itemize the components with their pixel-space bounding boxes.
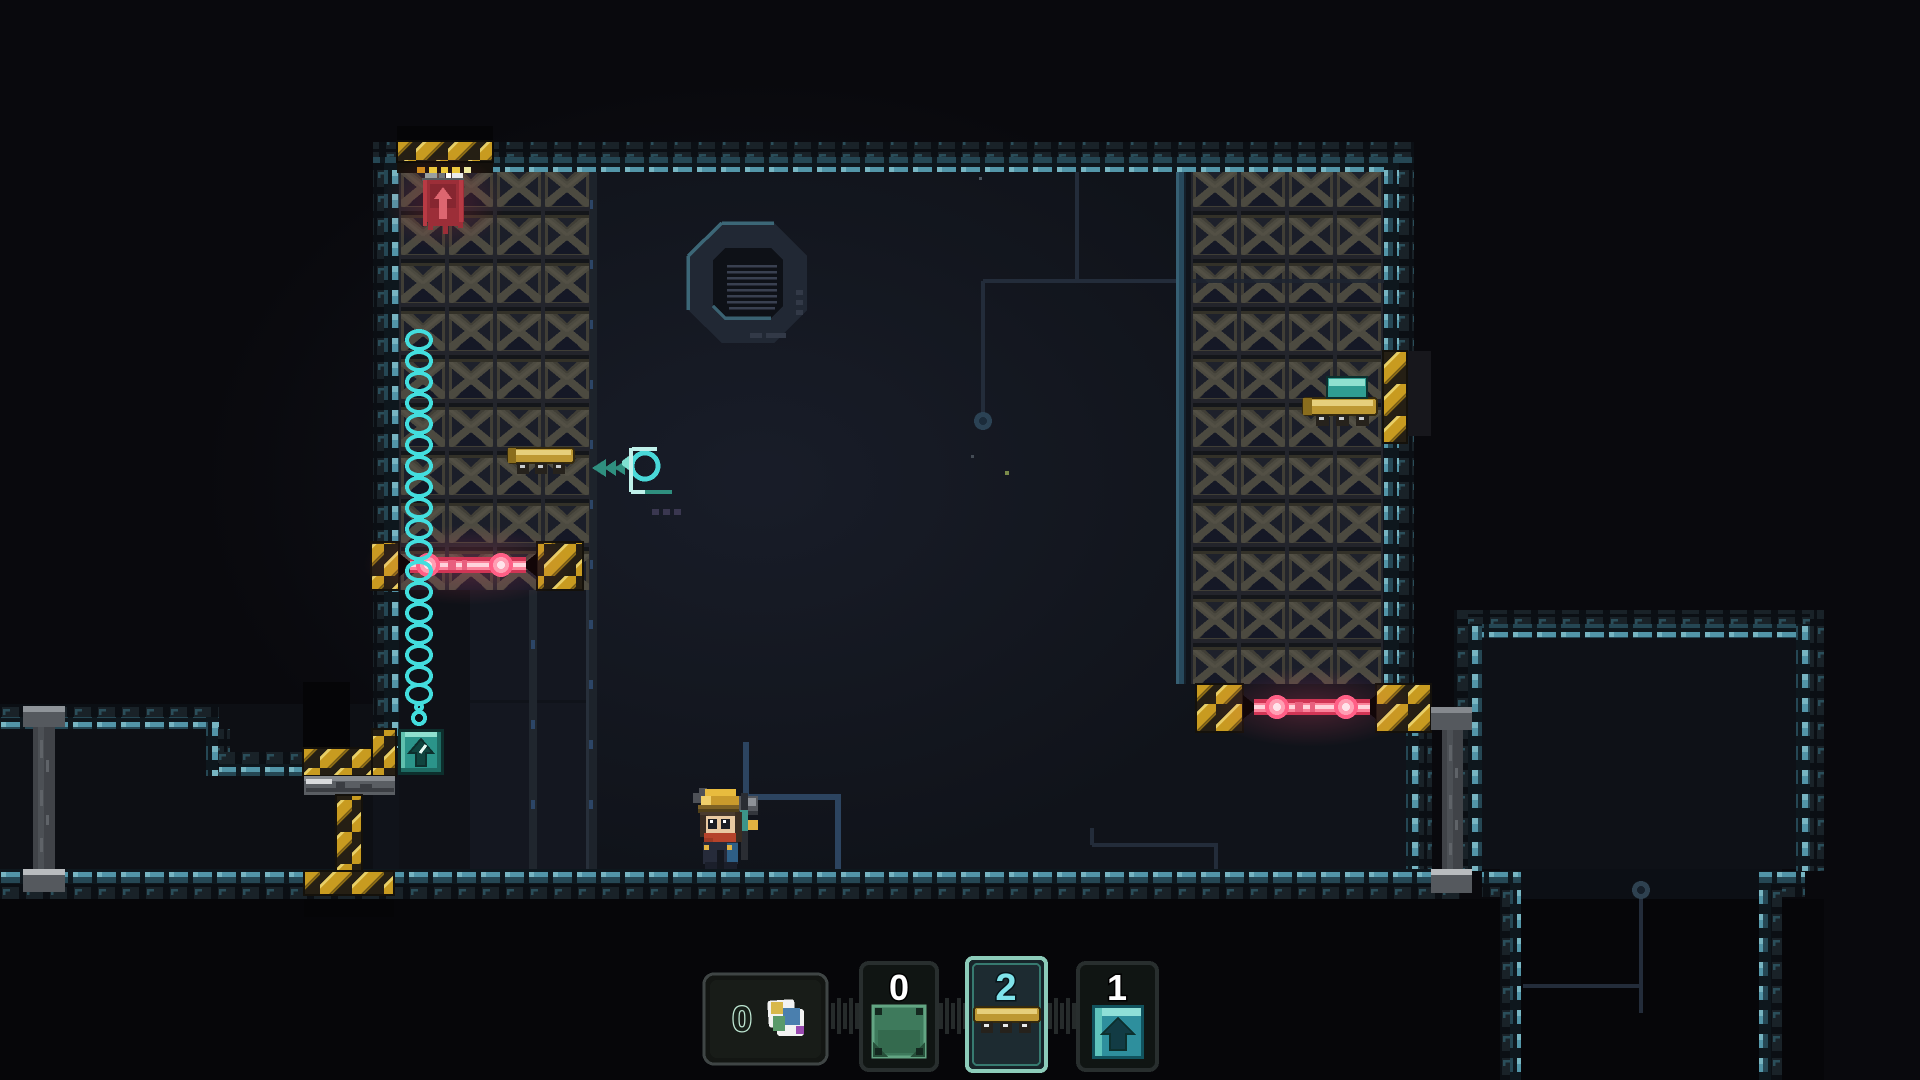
svg-text:0: 0 <box>732 1000 751 1039</box>
svg-text:1: 1 <box>1107 967 1127 1008</box>
svg-text:0: 0 <box>889 967 909 1008</box>
svg-text:2: 2 <box>995 967 1016 1009</box>
